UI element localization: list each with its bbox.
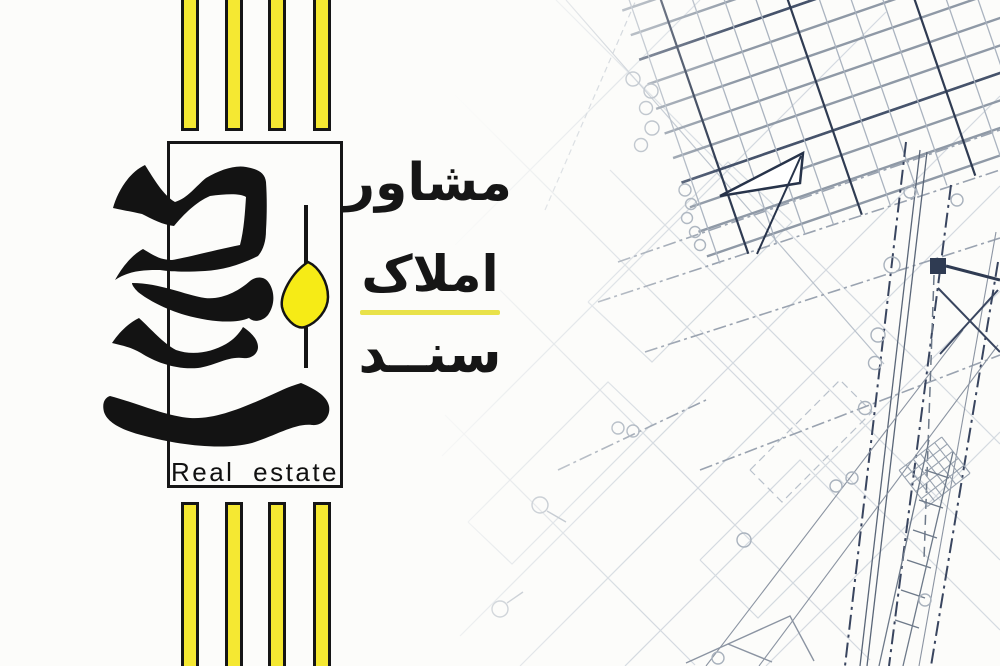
tagline-real-estate: Real estate xyxy=(167,457,343,488)
bottom-stripe-2 xyxy=(225,502,243,666)
bottom-stripe-4 xyxy=(313,502,331,666)
yellow-divider-line xyxy=(360,310,500,315)
top-stripe-1 xyxy=(181,0,199,131)
poster-canvas: Real estate مشاور املاک سنــد xyxy=(0,0,1000,666)
top-stripe-2 xyxy=(225,0,243,131)
headline-line1-moshaver: مشاور xyxy=(348,153,512,213)
sanad-calligraphy-logo xyxy=(95,145,355,475)
bottom-stripe-3 xyxy=(268,502,286,666)
headline-line2-amlak: املاک xyxy=(348,245,512,303)
leaf-accent-group xyxy=(282,205,328,368)
top-stripe-4 xyxy=(313,0,331,131)
headline-line3-sanad: سنــد xyxy=(348,324,512,384)
white-fade-overlay xyxy=(440,0,1000,666)
top-stripe-3 xyxy=(268,0,286,131)
bottom-stripe-1 xyxy=(181,502,199,666)
